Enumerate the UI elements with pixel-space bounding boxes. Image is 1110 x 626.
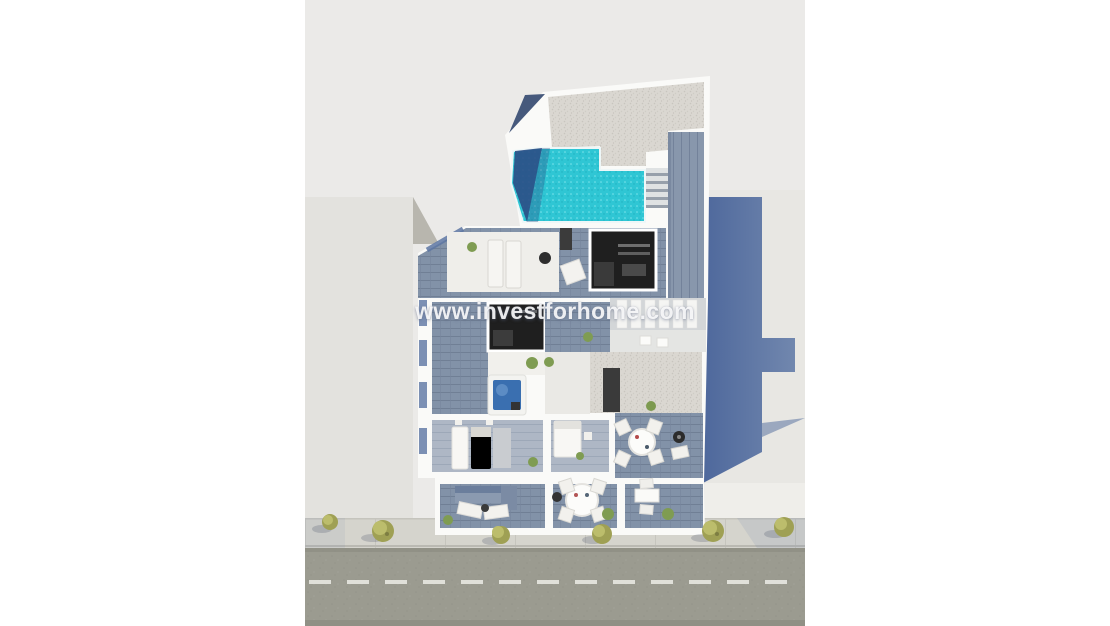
deck-stairs xyxy=(646,168,668,208)
shelf xyxy=(618,244,650,247)
watermark-text: www.investforhome.com xyxy=(305,298,805,325)
street xyxy=(305,548,805,626)
coffee-table xyxy=(481,504,489,512)
pillow xyxy=(471,427,491,437)
cutaway-bedroom-top xyxy=(590,230,656,290)
plant xyxy=(583,332,593,342)
nightstand xyxy=(657,338,668,347)
outdoor-shower-panel xyxy=(560,228,572,250)
chair xyxy=(640,504,654,514)
rug xyxy=(493,428,511,468)
neighbor-building-left xyxy=(305,197,413,528)
wood-deck-strip xyxy=(668,132,704,298)
roof-terrace xyxy=(418,228,666,298)
glass-railing xyxy=(419,340,427,366)
balcony-left-unit xyxy=(440,484,545,528)
plant xyxy=(526,357,538,369)
nightstand xyxy=(640,336,651,345)
plant xyxy=(646,401,656,411)
bed xyxy=(452,427,468,469)
nightstand xyxy=(486,420,493,425)
listing-photo: www.investforhome.com xyxy=(305,0,805,626)
pillow xyxy=(554,421,581,429)
gravel-mid-roof xyxy=(590,352,702,413)
balcony xyxy=(440,478,703,528)
plant xyxy=(467,242,477,252)
plant xyxy=(528,457,538,467)
bed-dark xyxy=(622,264,646,276)
glass-railing xyxy=(419,428,427,454)
nightstand xyxy=(455,420,462,425)
plant xyxy=(662,508,674,520)
plant xyxy=(576,452,584,460)
sun-lounger xyxy=(506,241,521,288)
plant xyxy=(544,357,554,367)
balcony-right-unit xyxy=(625,478,703,528)
shelf xyxy=(618,252,650,255)
stairwell-opening xyxy=(603,368,620,412)
plant xyxy=(602,508,614,520)
bedroom-two xyxy=(551,420,609,472)
balcony-middle-unit xyxy=(552,478,617,528)
plant xyxy=(443,515,453,525)
side-table xyxy=(539,252,551,264)
bedroom-one xyxy=(432,420,543,472)
curb-line xyxy=(305,545,805,547)
glass-railing xyxy=(419,382,427,408)
neighbor-right-lower-roof xyxy=(705,483,805,520)
sun-lounger xyxy=(488,240,503,287)
neighbor-left-roof-hip xyxy=(413,197,439,244)
jacuzzi xyxy=(488,375,526,415)
chair xyxy=(640,478,654,488)
side-table xyxy=(584,432,592,440)
page-background: www.investforhome.com xyxy=(0,0,1110,626)
side-table-dark xyxy=(552,492,562,502)
small-table xyxy=(635,489,659,502)
